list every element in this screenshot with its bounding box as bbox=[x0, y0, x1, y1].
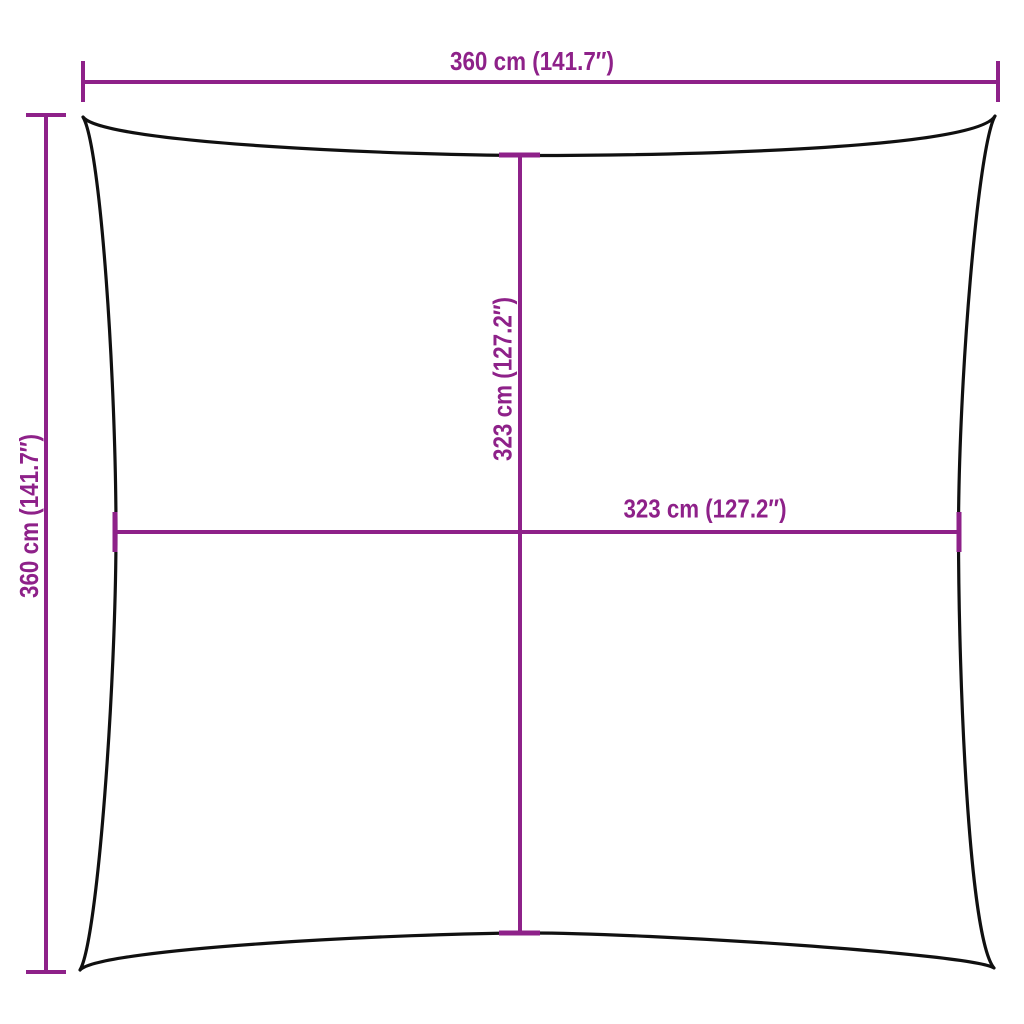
svg-text:323 cm (127.2″): 323 cm (127.2″) bbox=[624, 494, 787, 524]
svg-text:323 cm (127.2″): 323 cm (127.2″) bbox=[488, 297, 518, 461]
svg-text:360 cm (141.7″): 360 cm (141.7″) bbox=[450, 46, 614, 76]
svg-text:360 cm (141.7″): 360 cm (141.7″) bbox=[14, 434, 44, 598]
